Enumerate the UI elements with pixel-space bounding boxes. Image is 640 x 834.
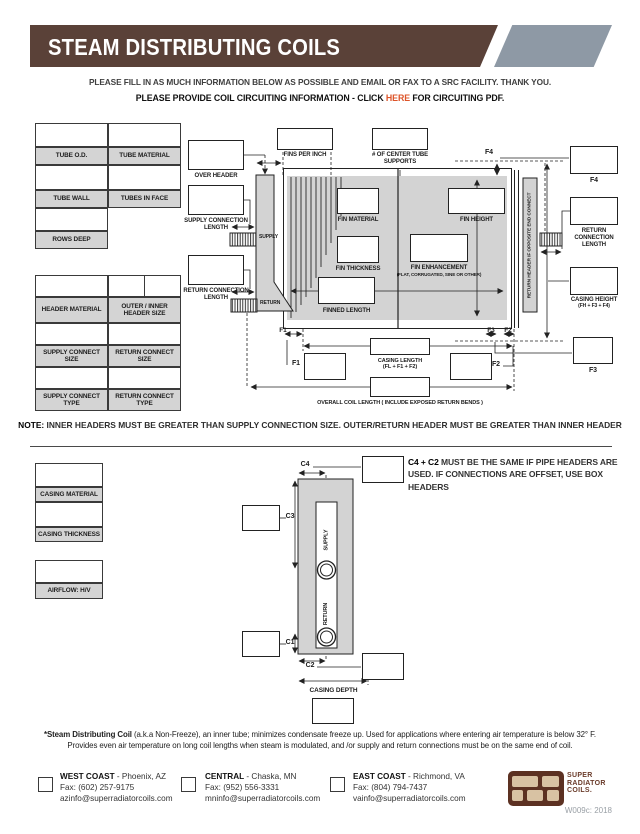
- tube-od-label: TUBE O.D.: [35, 147, 108, 165]
- instruction-line-2-suffix: FOR CIRCUITING PDF.: [410, 93, 504, 103]
- fin-height-label: FIN HEIGHT: [448, 217, 505, 224]
- return-connect-size-input[interactable]: [108, 323, 181, 345]
- casing-depth-label: CASING DEPTH: [296, 687, 371, 695]
- banner-accent: [494, 25, 612, 67]
- c3-input[interactable]: [242, 505, 280, 531]
- casing-height-label-sub: (FH + F3 + F4): [562, 304, 626, 310]
- tubes-in-face-input[interactable]: [108, 165, 181, 190]
- west-coast-email: azinfo@superradiatorcoils.com: [60, 794, 190, 805]
- opposite-end-return-pipe: [540, 233, 562, 246]
- logo-block: [512, 790, 523, 801]
- supply-connect-type-input[interactable]: [35, 367, 108, 389]
- west-coast-contact: WEST COAST - Phoenix, AZ Fax: (602) 257-…: [60, 772, 190, 804]
- logo-wordmark: SUPER RADIATOR COILS.: [567, 772, 606, 795]
- note-line: NOTE: INNER HEADERS MUST BE GREATER THAN…: [0, 420, 640, 430]
- supply-pipe-label: SUPPLY: [259, 235, 293, 241]
- west-coast-city: - Phoenix, AZ: [115, 772, 166, 781]
- c3-marker: C3: [283, 513, 297, 521]
- outer-header-size-input[interactable]: [109, 276, 145, 296]
- pipe-header-note: C4 + C2 MUST BE THE SAME IF PIPE HEADERS…: [408, 456, 626, 493]
- east-coast-fax: Fax: (804) 794-7437: [353, 783, 483, 794]
- f4-input[interactable]: [570, 146, 618, 174]
- return-connection-length-right-input[interactable]: [570, 197, 618, 225]
- finned-length-input[interactable]: [318, 277, 375, 304]
- c1-marker: C1: [283, 639, 297, 647]
- footnote-line-2: Provides even air temperature on long co…: [0, 741, 640, 750]
- tube-material-label: TUBE MATERIAL: [108, 147, 181, 165]
- logo-word-1: SUPER: [567, 772, 606, 780]
- west-coast-name: WEST COAST: [60, 772, 115, 781]
- c4-marker: C4: [298, 461, 312, 469]
- f1-marker: F1: [276, 327, 290, 335]
- return-connect-type-label: RETURN CONNECT TYPE: [108, 389, 181, 411]
- note-text: INNER HEADERS MUST BE GREATER THAN SUPPL…: [44, 420, 622, 430]
- f4-box-label: F4: [570, 177, 618, 185]
- header-size-label: OUTER / INNER HEADER SIZE: [108, 297, 181, 323]
- overall-coil-length-input[interactable]: [370, 377, 430, 397]
- casing-material-label: CASING MATERIAL: [35, 487, 103, 502]
- over-header-label: OVER HEADER: [178, 173, 254, 180]
- casing-depth-input[interactable]: [312, 698, 354, 724]
- tubes-in-face-label: TUBES IN FACE: [108, 190, 181, 208]
- document-code: W009c: 2018: [540, 806, 612, 815]
- fin-thickness-input[interactable]: [337, 236, 379, 263]
- east-coast-name: EAST COAST: [353, 772, 406, 781]
- page-title: STEAM DISTRIBUTING COILS: [48, 34, 340, 61]
- central-contact: CENTRAL - Chaska, MN Fax: (952) 556-3331…: [205, 772, 335, 804]
- fin-enhancement-label-main: FIN ENHANCEMENT: [392, 265, 486, 272]
- fin-thickness-label: FIN THICKNESS: [330, 266, 386, 273]
- fin-material-input[interactable]: [337, 188, 379, 214]
- logo-block: [547, 790, 559, 801]
- pipe-header-note-bold: C4 + C2: [408, 457, 439, 467]
- tube-wall-label: TUBE WALL: [35, 190, 108, 208]
- fin-material-label: FIN MATERIAL: [330, 217, 386, 224]
- tube-wall-input[interactable]: [35, 165, 108, 190]
- central-name: CENTRAL: [205, 772, 244, 781]
- central-city: - Chaska, MN: [244, 772, 296, 781]
- logo-word-3: COILS.: [567, 787, 606, 795]
- return-header-note-label: RETURN HEADER IF OPPOSITE END CONNECT: [523, 178, 537, 312]
- c2-marker: C2: [303, 662, 317, 670]
- super-radiator-coils-logo: [508, 771, 564, 806]
- casing-thickness-input[interactable]: [35, 502, 103, 527]
- supply-connection-length-input[interactable]: [188, 185, 244, 215]
- tube-material-input[interactable]: [108, 123, 181, 147]
- logo-block: [542, 776, 559, 787]
- east-coast-city: - Richmond, VA: [406, 772, 465, 781]
- f1-input[interactable]: [304, 353, 346, 380]
- f1-label: F1: [289, 360, 303, 368]
- airflow-input[interactable]: [35, 560, 103, 583]
- tube-table: TUBE O.D. TUBE MATERIAL TUBE WALL TUBES …: [35, 123, 181, 249]
- casing-length-label: CASING LENGTH (FL + F1 + F2): [365, 358, 435, 371]
- f2-input[interactable]: [450, 353, 492, 380]
- note-label: NOTE:: [18, 420, 44, 430]
- circuiting-pdf-link[interactable]: HERE: [386, 93, 410, 103]
- logo-block: [527, 790, 543, 801]
- return-pipe-label: RETURN: [260, 301, 294, 307]
- supply-pipe: [230, 233, 256, 246]
- center-tube-supports-input[interactable]: [372, 128, 428, 150]
- fin-enhancement-input[interactable]: [410, 234, 468, 262]
- supply-section-label: SUPPLY: [316, 514, 337, 566]
- west-coast-fax: Fax: (602) 257-9175: [60, 783, 190, 794]
- f2-label: F2: [489, 361, 503, 369]
- central-checkbox[interactable]: [181, 777, 196, 792]
- fins-per-inch-input[interactable]: [277, 128, 333, 150]
- fin-enhancement-label: FIN ENHANCEMENT (FLAT, CORRUGATED, SINE …: [392, 265, 486, 277]
- central-email: mninfo@superradiatorcoils.com: [205, 794, 335, 805]
- instruction-line-2: PLEASE PROVIDE COIL CIRCUITING INFORMATI…: [0, 93, 640, 103]
- logo-block: [512, 776, 538, 787]
- f3-input[interactable]: [573, 337, 613, 364]
- return-connection-length-input[interactable]: [188, 255, 244, 285]
- section-divider: [30, 446, 612, 447]
- return-section-label: RETURN: [316, 588, 337, 640]
- c2-input[interactable]: [362, 653, 404, 680]
- f3-marker: F3: [484, 327, 498, 335]
- casing-table: CASING MATERIAL CASING THICKNESS: [35, 463, 103, 542]
- c4-input[interactable]: [362, 456, 404, 483]
- central-fax: Fax: (952) 556-3331: [205, 783, 335, 794]
- instruction-line-1: PLEASE FILL IN AS MUCH INFORMATION BELOW…: [0, 77, 640, 87]
- fin-height-input[interactable]: [448, 188, 505, 214]
- header-table: HEADER MATERIAL OUTER / INNER HEADER SIZ…: [35, 275, 181, 411]
- airflow-table: AIRFLOW: H/V: [35, 560, 103, 599]
- f2-marker: F2: [501, 327, 515, 335]
- return-connection-length-label: RETURN CONNECTION LENGTH: [174, 288, 258, 302]
- footnote-line-1: *Steam Distributing Coil (a.k.a Non-Free…: [0, 730, 640, 739]
- supply-connect-size-input[interactable]: [35, 323, 108, 345]
- instruction-line-2-prefix: PLEASE PROVIDE COIL CIRCUITING INFORMATI…: [136, 93, 386, 103]
- east-coast-contact: EAST COAST - Richmond, VA Fax: (804) 794…: [353, 772, 483, 804]
- tube-od-input[interactable]: [35, 123, 108, 147]
- return-connection-length-right-label: RETURN CONNECTION LENGTH: [562, 228, 626, 249]
- supply-connect-type-label: SUPPLY CONNECT TYPE: [35, 389, 108, 411]
- airflow-label: AIRFLOW: H/V: [35, 583, 103, 599]
- pipe-header-note-text: MUST BE THE SAME IF PIPE HEADERS ARE USE…: [408, 457, 617, 492]
- f4-marker: F4: [482, 149, 496, 157]
- rows-deep-label: ROWS DEEP: [35, 231, 108, 249]
- supply-connection-length-label: SUPPLY CONNECTION LENGTH: [174, 218, 258, 232]
- casing-thickness-label: CASING THICKNESS: [35, 527, 103, 542]
- footnote-text-1: (a.k.a Non-Freeze), an inner tube; minim…: [132, 730, 596, 739]
- over-header-input[interactable]: [188, 140, 244, 170]
- fin-enhancement-label-sub: (FLAT, CORRUGATED, SINE OR OTHER): [392, 272, 486, 277]
- east-coast-checkbox[interactable]: [330, 777, 345, 792]
- supply-connect-size-label: SUPPLY CONNECT SIZE: [35, 345, 108, 367]
- header-material-input[interactable]: [35, 275, 108, 297]
- casing-height-input[interactable]: [570, 267, 618, 295]
- fins-per-inch-label: FINS PER INCH: [277, 152, 333, 159]
- rows-deep-input[interactable]: [35, 208, 108, 231]
- casing-length-label-sub: (FL + F1 + F2): [365, 364, 435, 370]
- casing-height-label: CASING HEIGHT (FH + F3 + F4): [562, 297, 626, 310]
- steam-distributing-coils-form: STEAM DISTRIBUTING COILS PLEASE FILL IN …: [0, 0, 640, 834]
- finned-length-label: FINNED LENGTH: [318, 308, 375, 315]
- c1-input[interactable]: [242, 631, 280, 657]
- return-connect-size-label: RETURN CONNECT SIZE: [108, 345, 181, 367]
- f3-box-label: F3: [573, 367, 613, 375]
- header-size-inputs: [108, 275, 181, 297]
- center-tube-supports-label: # OF CENTER TUBE SUPPORTS: [368, 152, 432, 166]
- east-coast-email: vainfo@superradiatorcoils.com: [353, 794, 483, 805]
- casing-length-input[interactable]: [370, 338, 430, 355]
- west-coast-checkbox[interactable]: [38, 777, 53, 792]
- casing-material-input[interactable]: [35, 463, 103, 487]
- footnote-bold: *Steam Distributing Coil: [44, 730, 132, 739]
- header-material-label: HEADER MATERIAL: [35, 297, 108, 323]
- logo-word-2: RADIATOR: [567, 780, 606, 788]
- return-connect-type-input[interactable]: [108, 367, 181, 389]
- overall-coil-length-label: OVERALL COIL LENGTH ( INCLUDE EXPOSED RE…: [275, 400, 525, 406]
